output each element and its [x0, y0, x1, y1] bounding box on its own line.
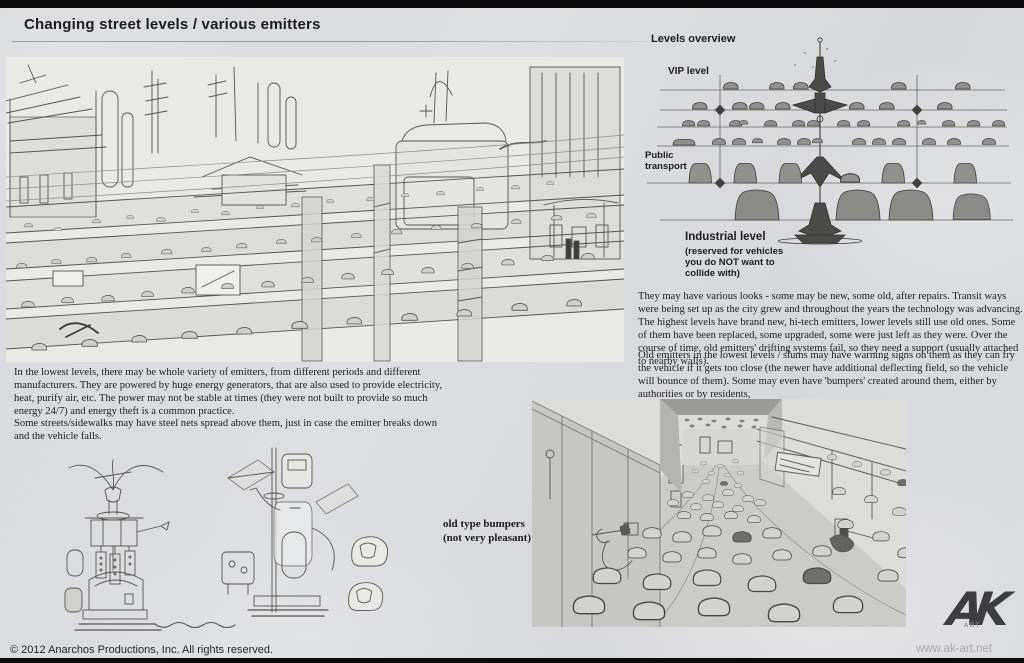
public-transport-label: Public transport	[645, 150, 701, 172]
old-emitters-sketch	[55, 442, 440, 638]
bumpers-caption-note: (not very pleasant)	[443, 531, 531, 545]
paragraph-emitters-variety: In the lowest levels, there may be whole…	[14, 367, 444, 419]
website-url: www.ak-art.net	[916, 643, 992, 655]
street-canyon-sketch	[532, 399, 906, 627]
parked-vehicles	[349, 537, 388, 611]
page: Changing street levels / various emitter…	[0, 0, 1024, 663]
ground-line	[155, 623, 235, 628]
paragraph-steel-nets: Some streets/sidewalks may have steel ne…	[14, 418, 444, 444]
industrial-level-note: (reserved for vehicles you do NOT want t…	[685, 247, 787, 279]
copyright-text: © 2012 Anarchos Productions, Inc. All ri…	[10, 644, 273, 656]
bottom-black-bar	[0, 658, 1024, 663]
ak-logo: AK ART	[948, 594, 1018, 644]
vip-level-label: VIP level	[668, 66, 709, 77]
title-divider	[12, 41, 704, 42]
industrial-level-label: Industrial level	[685, 231, 766, 243]
paragraph-old-emitters: Old emitters in the lowest levels / slum…	[638, 350, 1024, 402]
top-black-bar	[0, 0, 1024, 8]
specks	[794, 48, 835, 67]
ak-logo-art-label: ART	[964, 623, 981, 629]
left-emitter-machine	[65, 460, 169, 630]
bumpers-caption-label: old type bumpers	[443, 517, 531, 531]
page-title: Changing street levels / various emitter…	[24, 16, 321, 33]
bumpers-caption: old type bumpers (not very pleasant)	[443, 517, 531, 545]
main-city-sketch	[6, 57, 624, 362]
right-emitter-machine	[222, 448, 358, 616]
